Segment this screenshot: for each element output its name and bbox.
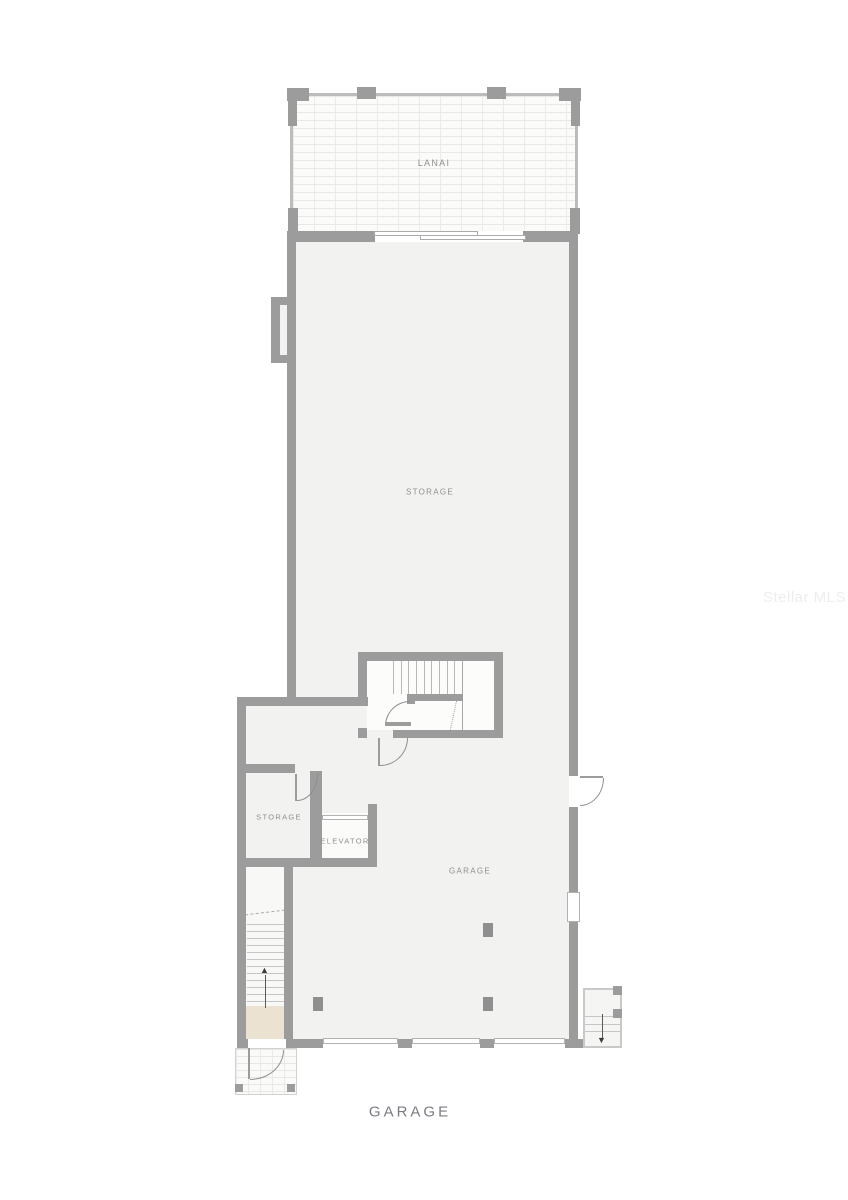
room-label-storage-main: STORAGE (406, 488, 454, 497)
door-leaf (248, 1048, 250, 1079)
wall-segment (237, 697, 368, 706)
room-label-garage: GARAGE (449, 867, 491, 876)
lanai-post (288, 98, 297, 126)
wall-segment (494, 652, 503, 738)
garage-column (313, 997, 323, 1011)
stair-tread (401, 661, 402, 694)
garage-column (483, 997, 493, 1011)
stairs-up-icon: ▲ (260, 966, 269, 975)
lanai-post (487, 87, 506, 99)
wall-segment (237, 1039, 248, 1048)
stairs-down-icon: ▼ (597, 1036, 606, 1045)
stair-tread (439, 661, 440, 694)
wall-segment (271, 297, 280, 363)
stair-tread (247, 924, 284, 925)
stair-tread (416, 661, 417, 694)
door-leaf (580, 776, 603, 778)
door-leaf (378, 738, 380, 766)
garage-column (483, 923, 493, 937)
wall-segment (398, 1039, 412, 1048)
wall-segment (237, 858, 377, 867)
stair-tread (247, 959, 284, 960)
wall-segment (407, 694, 463, 701)
garage-door-opening (412, 1038, 480, 1044)
porch-post (235, 1084, 243, 1092)
wall-segment (271, 297, 296, 305)
platform-post (613, 1009, 622, 1018)
door-opening (569, 776, 578, 807)
wall-segment (480, 1039, 494, 1048)
room-label-storage-small: STORAGE (256, 813, 302, 822)
watermark: Stellar MLS (763, 589, 846, 606)
garage-door-opening (494, 1038, 565, 1044)
sliding-door (420, 235, 526, 240)
lanai-post (571, 98, 580, 126)
wall-segment (358, 652, 367, 702)
stair-tread (431, 661, 432, 694)
stair-landing (246, 1006, 284, 1039)
door-swing (580, 778, 604, 806)
porch-post (287, 1084, 295, 1092)
stair-tread (408, 661, 409, 694)
window-opening (567, 892, 580, 922)
room-label-lanai: LANAI (418, 158, 451, 168)
platform-post (613, 986, 622, 995)
wall-segment (284, 867, 293, 1039)
stair-tread (247, 945, 284, 946)
stair-tread (447, 661, 448, 694)
wall-segment (358, 728, 367, 738)
stair-tread (247, 931, 284, 932)
wall-segment (287, 231, 375, 242)
wall-segment (271, 355, 296, 363)
room-label-elevator: ELEVATOR (320, 837, 369, 846)
wall-segment (237, 764, 295, 773)
door-leaf (385, 722, 411, 726)
stair-tread (247, 952, 284, 953)
stair-tread (393, 661, 394, 694)
storage-main-floor (296, 242, 569, 702)
wall-segment (237, 697, 246, 1048)
plan-title: GARAGE (369, 1104, 451, 1121)
garage-door-opening (323, 1038, 398, 1044)
stairs-up-arrow-stem (265, 975, 266, 1008)
lanai-post (357, 87, 376, 99)
wall-segment (393, 730, 503, 738)
wall-segment (293, 93, 575, 96)
stair-tread (454, 661, 455, 694)
stair-tread (247, 938, 284, 939)
stair-tread (424, 661, 425, 694)
door-leaf (295, 774, 297, 801)
elevator-door (322, 815, 368, 820)
wall-segment (358, 652, 503, 661)
floor-plan-canvas: ▲ ▼ LANAI STORAGE STORAGE ELEVATOR GARAG… (0, 0, 848, 1200)
wall-segment (569, 231, 578, 1048)
wall-segment (565, 1039, 583, 1048)
wall-segment (286, 1039, 323, 1048)
garage-floor (246, 702, 569, 1039)
